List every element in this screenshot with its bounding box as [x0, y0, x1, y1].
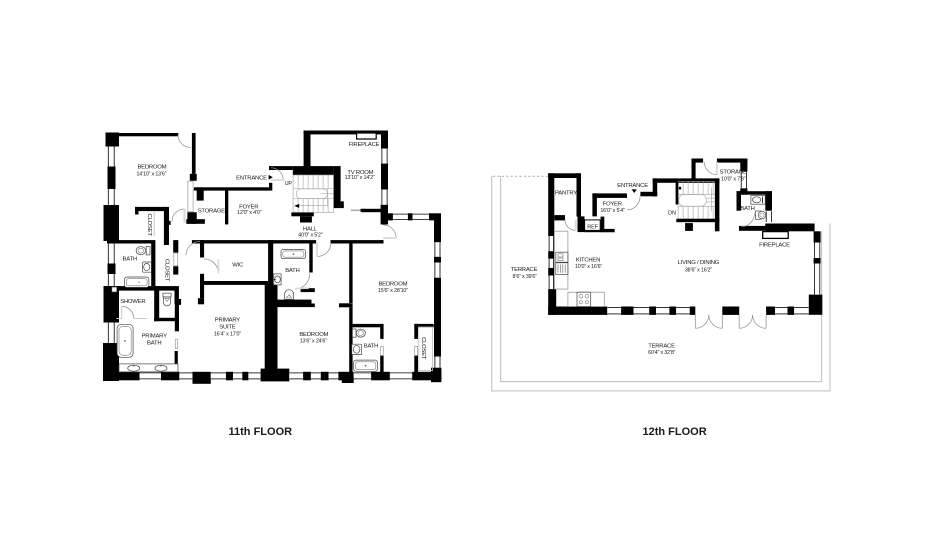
svg-text:BATH: BATH: [364, 344, 378, 350]
svg-text:ENTRANCE: ENTRANCE: [617, 183, 648, 189]
svg-text:BATH: BATH: [740, 206, 754, 212]
svg-text:LIVING / DINING: LIVING / DINING: [678, 260, 720, 266]
svg-text:CLOSET: CLOSET: [420, 337, 426, 360]
svg-text:13’10” x 14’2”: 13’10” x 14’2”: [345, 175, 375, 181]
svg-text:14’10” x 13’6”: 14’10” x 13’6”: [136, 171, 166, 177]
svg-text:PRIMARY: PRIMARY: [215, 318, 240, 324]
svg-text:TERRACE: TERRACE: [648, 344, 675, 350]
svg-text:SHOWER: SHOWER: [120, 299, 145, 305]
svg-text:BEDROOM: BEDROOM: [378, 282, 407, 288]
svg-text:60’4” x 32’8”: 60’4” x 32’8”: [648, 350, 675, 356]
svg-text:KITCHEN: KITCHEN: [576, 258, 600, 264]
svg-text:10’0” x 16’6”: 10’0” x 16’6”: [575, 264, 602, 270]
svg-text:16’4” x 17’0”: 16’4” x 17’0”: [214, 332, 241, 338]
svg-text:DN: DN: [668, 211, 676, 217]
svg-text:PRIMARY: PRIMARY: [142, 334, 167, 340]
svg-text:UP: UP: [285, 181, 293, 187]
svg-text:10’0” x 7’8”: 10’0” x 7’8”: [721, 177, 746, 183]
svg-text:12’0” x 4’0”: 12’0” x 4’0”: [237, 210, 262, 216]
svg-text:STORAGE: STORAGE: [720, 170, 747, 176]
svg-text:PANTRY: PANTRY: [555, 191, 577, 197]
svg-text:CLOSET: CLOSET: [164, 259, 170, 282]
svg-text:STORAGE: STORAGE: [198, 209, 225, 215]
svg-text:REF: REF: [587, 224, 598, 230]
svg-text:8’6” x 39’6”: 8’6” x 39’6”: [513, 274, 538, 280]
svg-text:FIREPLACE: FIREPLACE: [759, 243, 790, 249]
svg-text:FOYER: FOYER: [603, 202, 622, 208]
svg-text:11th FLOOR: 11th FLOOR: [229, 426, 293, 438]
svg-text:BEDROOM: BEDROOM: [137, 164, 166, 170]
svg-text:38’6” x 16’2”: 38’6” x 16’2”: [685, 268, 712, 274]
svg-text:ENTRANCE: ENTRANCE: [236, 176, 267, 182]
svg-text:12th FLOOR: 12th FLOOR: [643, 426, 707, 438]
svg-text:BATH: BATH: [147, 340, 161, 346]
svg-text:40’0” x 5’2”: 40’0” x 5’2”: [298, 233, 323, 239]
svg-text:BATH: BATH: [285, 268, 299, 274]
svg-text:BEDROOM: BEDROOM: [299, 332, 328, 338]
svg-text:SUITE: SUITE: [219, 325, 236, 331]
svg-text:16’0” x 5’4”: 16’0” x 5’4”: [600, 208, 625, 214]
svg-text:BATH: BATH: [122, 257, 136, 263]
svg-text:15’6” x 28’10”: 15’6” x 28’10”: [378, 288, 408, 294]
svg-text:WIC: WIC: [232, 262, 244, 268]
svg-text:TERRACE: TERRACE: [511, 267, 538, 273]
svg-text:CLOSET: CLOSET: [146, 213, 152, 236]
svg-text:13’6” x 24’6”: 13’6” x 24’6”: [300, 339, 327, 345]
svg-text:FIREPLACE: FIREPLACE: [349, 142, 380, 148]
